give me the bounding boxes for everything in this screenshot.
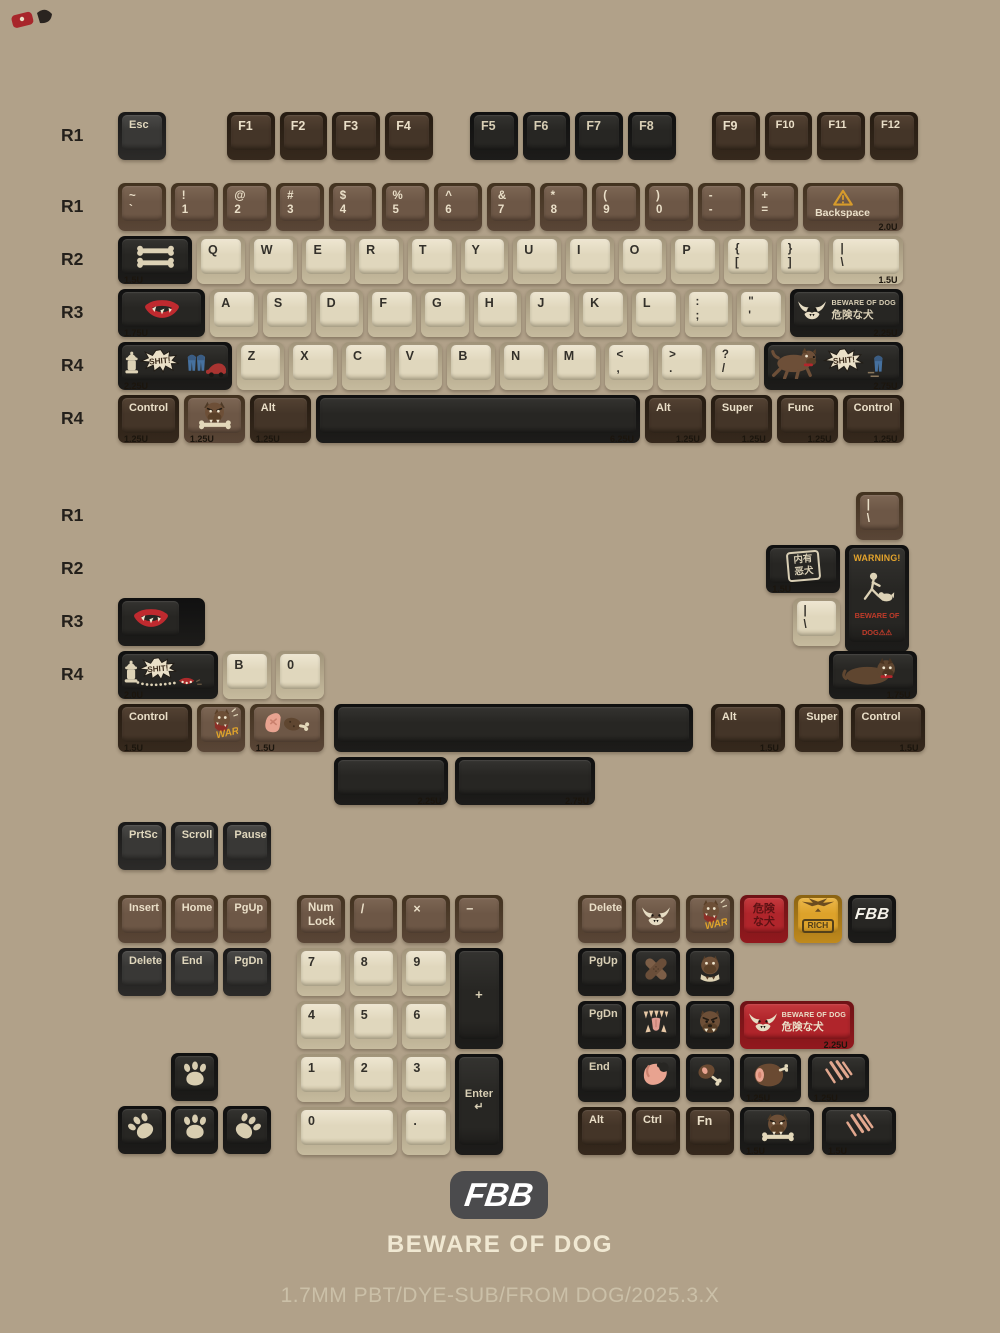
angry-dog-face-icon: [797, 300, 827, 320]
keycap-top: [833, 654, 912, 689]
key-legend: 3: [413, 1061, 420, 1076]
angry-dog-face-icon: [748, 1012, 778, 1032]
key-super-extra: Super: [795, 704, 843, 752]
key-legend: F6: [534, 119, 549, 134]
key-legend: O: [630, 243, 640, 258]
keycap-top: [227, 1109, 267, 1144]
key-fbb: FBB: [848, 895, 896, 943]
set-subtitle: 1.7MM PBT/DYE-SUB/FROM DOG/2025.3.X: [0, 1284, 1000, 1308]
key-legend: Y: [472, 243, 480, 258]
key-legend: BEWARE OF DOG: [782, 1010, 847, 1019]
size-label: 1.25U: [190, 434, 214, 444]
keycap-top: ~`: [122, 186, 162, 221]
key-legend: +: [475, 988, 483, 1003]
key-prtsc: PrtSc: [118, 822, 166, 870]
keycap-top: "': [741, 292, 781, 327]
key-legend: `: [129, 204, 136, 218]
keycap-top: 2: [354, 1057, 394, 1092]
size-label: 1.25U: [814, 1093, 838, 1103]
key-f4: F4: [385, 112, 433, 160]
keycap-top: Y: [465, 239, 505, 274]
size-label: 1.5U: [828, 1146, 847, 1156]
key-np-divide: /: [350, 895, 398, 943]
key-legend: F5: [481, 119, 496, 134]
keycap-top: I: [570, 239, 610, 274]
key-semicolon: :;: [685, 289, 733, 337]
svg-text:SHIT!: SHIT!: [149, 356, 171, 367]
key-space-275: 2.75U: [455, 757, 595, 805]
key-f: F: [368, 289, 416, 337]
key-fangs: [632, 1001, 680, 1049]
eagle-icon: [801, 898, 835, 917]
row-label: R3: [61, 611, 83, 632]
key-collar-dog: [686, 948, 734, 996]
key-enter-beware-red: BEWARE OF DOG危険な犬2.25U: [740, 1001, 854, 1049]
key-legend: *: [551, 190, 557, 204]
key-legend: Z: [248, 349, 256, 364]
key-legend: PgDn: [234, 955, 263, 968]
key-rshift-dog: SHIT!2.75U: [764, 342, 904, 390]
key-legend: \: [867, 513, 870, 527]
key-d: D: [316, 289, 364, 337]
keycap-top: 5: [354, 1004, 394, 1039]
key-legend: N: [511, 349, 520, 364]
key-scroll: Scroll: [171, 822, 219, 870]
keycap-top: L: [636, 292, 676, 327]
keycap-top: [122, 601, 179, 636]
keycap-top: [636, 1057, 676, 1092]
key-legend: −: [466, 902, 473, 917]
key-legend: Control: [129, 711, 168, 724]
key-legend: Func: [788, 402, 814, 415]
key-pipe-r3: |\: [793, 598, 841, 646]
keycap-top: D: [320, 292, 360, 327]
keycap-top: [175, 1056, 215, 1091]
key-f5: F5: [470, 112, 518, 160]
keycap-top: Alt: [582, 1110, 622, 1145]
keycap-top: 3: [406, 1057, 446, 1092]
key-legend: S: [274, 296, 282, 311]
keycap-top: E: [306, 239, 346, 274]
key-h: H: [474, 289, 522, 337]
key-ctrl-2: Ctrl: [632, 1107, 680, 1155]
key-comma: <,: [605, 342, 653, 390]
key-legend: U: [524, 243, 533, 258]
key-meat-leg: 1.25U: [740, 1054, 801, 1102]
key-bandage: [632, 948, 680, 996]
key-legend: Alt: [261, 402, 276, 415]
key-dog-bone: 1.25U: [184, 395, 245, 443]
size-label: 1.5U: [900, 743, 919, 753]
keycap-top: BEWARE OF DOG危険な犬: [744, 1004, 850, 1039]
keycap-top: Alt: [715, 707, 781, 742]
keycap-top: P: [675, 239, 715, 274]
keycap-top: PgDn: [227, 951, 267, 986]
keycap-top: WARN: [690, 898, 730, 933]
keycap-top: Super: [799, 707, 839, 742]
key-legend: R: [366, 243, 375, 258]
key-space-7u: [334, 704, 693, 752]
key-legend: |: [804, 605, 807, 619]
key-legend: 0: [287, 658, 294, 673]
meat-bone-icon: [264, 711, 310, 738]
keycap-top: S: [267, 292, 307, 327]
svg-text:SHIT!: SHIT!: [147, 663, 169, 674]
key-pause: Pause: [223, 822, 271, 870]
keycap-top: [175, 1109, 215, 1144]
key-legend: Super: [806, 711, 837, 724]
key-f10: F10: [765, 112, 813, 160]
key-legend: ): [656, 190, 662, 204]
keycap-top: H: [478, 292, 518, 327]
key-caps-collar: 1.75U: [118, 289, 205, 337]
key-legend: (: [603, 190, 609, 204]
key-legend: /: [361, 902, 364, 917]
keycap-top: J: [530, 292, 570, 327]
keycap-top: Scroll: [175, 825, 215, 860]
keycap-top: 7: [301, 951, 341, 986]
key-legend: ~: [129, 190, 136, 204]
key-legend: Pause: [234, 829, 266, 842]
keycap-top: |\: [860, 495, 900, 530]
keycap-top: [459, 760, 591, 795]
row-label: R2: [61, 558, 83, 579]
size-label: 2.75U: [873, 381, 897, 391]
keycap-top: @2: [227, 186, 267, 221]
key-g: G: [421, 289, 469, 337]
key-meat-bone: 1.5U: [250, 704, 324, 752]
keycap-top: FBB: [852, 898, 892, 933]
key-alt-l: Alt1.25U: [250, 395, 311, 443]
key-legend: PgUp: [234, 902, 263, 915]
key-legend: Control: [854, 402, 893, 415]
warning-triangle-icon: [815, 189, 870, 206]
row-label: R4: [61, 355, 83, 376]
keycap-top: PrtSc: [122, 825, 162, 860]
key-legend: 0: [656, 204, 662, 218]
hydrant-chain-icon: SHIT!: [123, 656, 213, 687]
key-6: ^6: [434, 183, 482, 231]
key-legend: I: [577, 243, 580, 258]
key-legend: 8: [551, 204, 557, 218]
keycap-top: End: [175, 951, 215, 986]
key-legend: PgDn: [589, 1008, 618, 1021]
key-e: E: [302, 236, 350, 284]
collar-icon: [131, 607, 171, 630]
keycap-top: M: [557, 345, 597, 380]
key-dog-175: 1.75U: [829, 651, 916, 699]
key-legend: X: [300, 349, 308, 364]
keycap-top: Home: [175, 898, 215, 933]
keycap-top: }]: [781, 239, 821, 274]
key-legend: 8: [361, 955, 368, 970]
key-legend: Delete: [129, 955, 162, 968]
key-legend: Alt: [722, 711, 737, 724]
key-minus: --: [698, 183, 746, 231]
key-k: K: [579, 289, 627, 337]
keycap-top: |\: [833, 239, 899, 274]
keycap-top: F6: [527, 115, 567, 150]
key-func: Func1.25U: [777, 395, 838, 443]
svg-text:SHIT!: SHIT!: [832, 354, 855, 366]
key-backslash: |\1.5U: [829, 236, 903, 284]
keycap-top: Alt: [254, 398, 307, 433]
fbb-logo-text: FBB: [462, 1176, 535, 1214]
warn-dog-icon: WARN: [692, 899, 727, 932]
key-legend: 内有: [793, 553, 813, 566]
key-1: !1: [171, 183, 219, 231]
key-paw-top: [171, 1053, 219, 1101]
key-legend: 危険: [753, 903, 775, 916]
size-label: 1.5U: [746, 1146, 765, 1156]
key-legend: Q: [208, 243, 218, 258]
key-iso-enter-warning: WARNING!BEWARE OFDOG⚠⚠: [845, 545, 909, 652]
key-np-minus: −: [455, 895, 503, 943]
key-control-15l: Control1.5U: [118, 704, 192, 752]
key-control-15r: Control1.5U: [851, 704, 925, 752]
set-title: BEWARE OF DOG: [0, 1231, 1000, 1259]
bulldog-bone-icon: [760, 1112, 795, 1143]
key-bulldog-face: [686, 1001, 734, 1049]
key-control-r: Control1.25U: [843, 395, 904, 443]
keycap-top: O: [623, 239, 663, 274]
key-space-225: 2.25U: [334, 757, 448, 805]
keycap-top: SHIT!: [768, 345, 900, 380]
paw-right-icon: [232, 1112, 262, 1142]
keycap-top: 4: [301, 1004, 341, 1039]
corner-logo: [8, 4, 56, 47]
keycap-top: 8: [354, 951, 394, 986]
keycap-top: F1: [231, 115, 271, 150]
keycap-top: [826, 1110, 892, 1145]
keycap-top: F9: [716, 115, 756, 150]
keycap-top: 0: [280, 654, 320, 689]
size-label: 2.25U: [873, 328, 897, 338]
keycap-top: [636, 951, 676, 986]
key-enter-beware: BEWARE OF DOG危険な犬2.25U: [790, 289, 904, 337]
key-legend: 恶犬: [794, 565, 814, 578]
key-legend: |: [867, 499, 870, 513]
key-f3: F3: [332, 112, 380, 160]
key-end: End: [171, 948, 219, 996]
keycap-top: %5: [386, 186, 426, 221]
key-3: #3: [276, 183, 324, 231]
key-alt-r: Alt1.25U: [645, 395, 706, 443]
keycap-top: T: [412, 239, 452, 274]
key-legend: 6: [445, 204, 452, 218]
keycap-top: End: [582, 1057, 622, 1092]
key-legend: ↵: [474, 1101, 483, 1114]
keycap-top: $4: [333, 186, 373, 221]
meat-leg-icon: [752, 1061, 788, 1089]
key-b: B: [447, 342, 495, 390]
keycap-top: !1: [175, 186, 215, 221]
key-np-8: 8: [350, 948, 398, 996]
key-legend: [: [735, 257, 739, 271]
keycap-top: [812, 1057, 865, 1092]
key-legend: Esc: [129, 119, 149, 132]
keycap-top: {[: [728, 239, 768, 274]
keycap-top: [338, 760, 444, 795]
keycap-top: 内有恶犬: [770, 548, 836, 583]
running-dog-shit-icon: SHIT!: [771, 347, 897, 379]
keycap-top: &7: [491, 186, 531, 221]
key-legend: PgUp: [589, 955, 618, 968]
key-legend: FBB: [854, 906, 890, 924]
keycap-top: F12: [874, 115, 914, 150]
key-np-0: 0: [297, 1107, 397, 1155]
key-legend: 5: [361, 1008, 368, 1023]
key-alt-2: Alt: [578, 1107, 626, 1155]
key-legend: Home: [182, 902, 213, 915]
keycap-top: Func: [781, 398, 834, 433]
keycap-top: Fn: [690, 1110, 730, 1145]
paw-left-icon: [127, 1112, 157, 1142]
key-legend: F12: [881, 119, 900, 132]
key-slash: ?/: [711, 342, 759, 390]
key-legend: -: [709, 204, 713, 218]
keycap-top: :;: [689, 292, 729, 327]
key-b-extra: B: [223, 651, 271, 699]
size-label: 1.5U: [760, 743, 779, 753]
key-delete: Delete: [118, 948, 166, 996]
keycap-top: [122, 239, 188, 274]
key-f9: F9: [712, 112, 760, 160]
key-shift-shit-2u: SHIT!2.0U: [118, 651, 218, 699]
key-legend: Control: [129, 402, 168, 415]
paw-up-icon: [180, 1112, 210, 1142]
key-legend: \: [804, 619, 807, 633]
key-tab-bones: 1.5U: [118, 236, 192, 284]
key-legend: >: [669, 349, 676, 363]
key-legend: BEWARE OF DOG: [831, 298, 896, 307]
key-x: X: [289, 342, 337, 390]
lying-dog-icon: [842, 657, 904, 686]
keycap-top: F8: [632, 115, 672, 150]
key-legend: L: [643, 296, 651, 311]
keycap-top: 6: [406, 1004, 446, 1039]
size-label: 1.5U: [124, 275, 143, 285]
row-label: R1: [61, 125, 83, 146]
key-np-3: 3: [402, 1054, 450, 1102]
key-legend: Fn: [697, 1114, 712, 1129]
keycap-top: F: [372, 292, 412, 327]
keycap-top: Esc: [122, 115, 162, 150]
key-legend: ^: [445, 190, 452, 204]
keycap-top: SHIT!: [122, 654, 214, 689]
bulldog-bone-icon: [197, 400, 232, 431]
key-legend: M: [564, 349, 574, 364]
key-p: P: [671, 236, 719, 284]
beware-man-dog-icon: [859, 572, 895, 603]
size-label: 1.5U: [124, 743, 143, 753]
keycap-top: [254, 707, 320, 742]
keycap-top: PgUp: [227, 898, 267, 933]
key-esc: Esc: [118, 112, 166, 160]
keycap-top: [320, 398, 636, 433]
key-legend: F7: [586, 119, 601, 134]
keycap-top: 9: [406, 951, 446, 986]
key-legend: ": [748, 296, 753, 310]
key-c: C: [342, 342, 390, 390]
keycap-top: N: [504, 345, 544, 380]
key-v: V: [395, 342, 443, 390]
fangs-icon: [642, 1008, 670, 1036]
key-legend: 4: [340, 204, 346, 218]
key-np-9: 9: [402, 948, 450, 996]
key-r: R: [355, 236, 403, 284]
key-4: $4: [329, 183, 377, 231]
key-legend: K: [590, 296, 599, 311]
key-legend: \: [840, 257, 843, 271]
key-7: &7: [487, 183, 535, 231]
key-legend: F11: [828, 119, 846, 132]
key-f2: F2: [280, 112, 328, 160]
key-legend: ,: [616, 363, 623, 377]
keycap-top: PgDn: [582, 1004, 622, 1039]
key-legend: .: [669, 363, 676, 377]
key-legend: WARNING!: [853, 553, 900, 563]
keycap-top: [636, 1004, 676, 1039]
key-legend: 7: [308, 955, 315, 970]
key-pgup: PgUp: [223, 895, 271, 943]
size-label: 1.25U: [124, 434, 148, 444]
key-legend: #: [287, 190, 293, 204]
key-np-6: 6: [402, 1001, 450, 1049]
keycap-top: C: [346, 345, 386, 380]
key-legend: @: [234, 190, 245, 204]
key-legend: F: [379, 296, 387, 311]
keycap-top: F11: [821, 115, 861, 150]
keycap-top: 1: [301, 1057, 341, 1092]
keycap-top: F7: [579, 115, 619, 150]
key-legend: D: [327, 296, 336, 311]
key-legend: End: [589, 1061, 610, 1074]
bandage-icon: [641, 954, 671, 984]
row-label: R1: [61, 505, 83, 526]
key-np-2: 2: [350, 1054, 398, 1102]
key-legend: E: [313, 243, 321, 258]
collar-icon: [142, 298, 182, 321]
key-z: Z: [237, 342, 285, 390]
keycap-top: V: [399, 345, 439, 380]
key-drumstick: [686, 1054, 734, 1102]
row-label: R2: [61, 249, 83, 270]
keycap-top: PgUp: [582, 951, 622, 986]
key-legend: P: [682, 243, 690, 258]
key-t: T: [408, 236, 456, 284]
key-np-5: 5: [350, 1001, 398, 1049]
size-label: 2.25U: [124, 381, 148, 391]
key-pgdn: PgDn: [223, 948, 271, 996]
key-legend: C: [353, 349, 362, 364]
key-legend: !: [182, 190, 188, 204]
key-o: O: [619, 236, 667, 284]
size-label: 1.25U: [808, 434, 832, 444]
row-label: R4: [61, 408, 83, 429]
key-legend: :: [696, 296, 700, 310]
keycap-top: F2: [284, 115, 324, 150]
size-label: 2.25U: [824, 1040, 848, 1050]
keycap-top: Control: [122, 707, 188, 742]
dog-sign-frame: 内有恶犬: [785, 549, 820, 582]
key-legend: End: [182, 955, 203, 968]
key-np-7: 7: [297, 948, 345, 996]
size-label: 2.0U: [878, 222, 897, 232]
key-delete-2: Delete: [578, 895, 626, 943]
warn-dog-icon: WARN: [203, 708, 238, 741]
key-8: *8: [540, 183, 588, 231]
